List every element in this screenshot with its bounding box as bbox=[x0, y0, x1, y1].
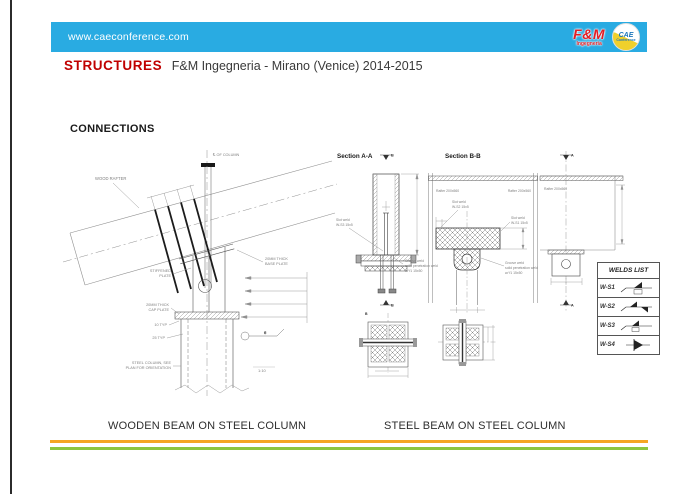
wood-rafter-label: WOOD RAFTER bbox=[95, 176, 126, 181]
weld-size-label: 6 bbox=[264, 330, 267, 335]
cap-plate-label-2: CAP PLATE bbox=[148, 308, 169, 312]
weld-row-ws4: W-S4 bbox=[598, 336, 659, 354]
welds-list-title: WELDS LIST bbox=[598, 263, 659, 279]
annotation-labels: WOOD RAFTER ℄ OF COLUMN 20MM THICK BASE … bbox=[95, 153, 288, 373]
rod-dimension-ticks bbox=[147, 185, 194, 210]
fm-logo-text: F&M bbox=[573, 27, 605, 41]
elevation-marker-top-label: A bbox=[571, 154, 574, 158]
window-left-border bbox=[10, 0, 12, 494]
steel-column-label-1: STEEL COLUMN, SEE bbox=[132, 361, 172, 365]
caption-steel-beam: STEEL BEAM ON STEEL COLUMN bbox=[384, 420, 566, 432]
slot-weld-b-right-label-2: W-S1 15x5 bbox=[511, 221, 528, 225]
slot-weld-b-right-label-1: Slot weld bbox=[511, 216, 525, 220]
fillet-weld-symbol bbox=[620, 280, 654, 296]
section-marker-bottom-label: B bbox=[391, 304, 394, 308]
slide: www.caeconference.com F&M Ingegneria CAE… bbox=[0, 0, 700, 494]
caption-wooden-beam: WOODEN BEAM ON STEEL COLUMN bbox=[108, 420, 306, 432]
section-a: Section A-A B Slot weld W-S3 15x5 bbox=[336, 153, 438, 308]
groove-weld-a-label-2: solid penetration weld bbox=[405, 264, 438, 268]
weld-symbol: 6 bbox=[241, 329, 284, 340]
elevation-rafter-label: Rafter 200x560 bbox=[544, 187, 567, 191]
elevation-base-dimension bbox=[551, 278, 582, 285]
wood-wall-right bbox=[395, 174, 399, 255]
dimension-stack bbox=[241, 272, 307, 323]
wood-wall-left bbox=[373, 174, 377, 255]
groove-weld-a-label-3: w/ f1 15x50 bbox=[405, 269, 422, 273]
fm-ingegneria-logo: F&M Ingegneria bbox=[573, 27, 605, 47]
wooden-beam-drawing: 6 WOOD RAFTER ℄ OF COLUMN 20MM THICK BAS… bbox=[55, 138, 340, 418]
column-above bbox=[201, 150, 215, 396]
plan-b-dimensions bbox=[483, 325, 495, 360]
elevation-marker-bottom: A bbox=[560, 300, 574, 308]
welds-list-table: WELDS LIST W-S1 W-S2 W-S3 bbox=[597, 262, 660, 355]
stiffened-plate-label-1: STIFFENED bbox=[150, 269, 171, 273]
slot-weld-a-label-1: Slot weld bbox=[336, 218, 350, 222]
logo-zone: F&M Ingegneria CAE Conference bbox=[573, 23, 640, 51]
section-a-dimensions bbox=[401, 174, 419, 255]
slot-weld-a-label-2: W-S3 15x5 bbox=[336, 223, 353, 227]
groove-weld-symbol bbox=[620, 337, 654, 353]
rafter-left-label: Rafter 200x560 bbox=[436, 189, 459, 193]
section-b: Section B-B Rafter 200x560 Rafter 200x56… bbox=[429, 153, 538, 313]
elevation-marker-bottom-label: A bbox=[571, 304, 574, 308]
groove-weld-b-label-3: w/ f1 15x50 bbox=[505, 271, 522, 275]
footer-green-line bbox=[50, 447, 648, 450]
weld-id-label: W-S1 bbox=[600, 285, 620, 291]
elevation-marker-top: A bbox=[560, 154, 574, 161]
conference-url-link[interactable]: www.caeconference.com bbox=[68, 31, 189, 43]
header-bar: www.caeconference.com F&M Ingegneria CAE… bbox=[51, 22, 647, 52]
weld-row-ws3: W-S3 bbox=[598, 317, 659, 336]
section-b-title: Section B-B bbox=[445, 153, 481, 160]
stiffened-plate-label-2: PLATE bbox=[159, 274, 171, 278]
plan-a-marker: B bbox=[365, 312, 368, 316]
glued-rods bbox=[155, 199, 217, 293]
double-fillet-weld-symbol bbox=[620, 299, 654, 315]
typ10-label: 10 TYP bbox=[154, 323, 167, 327]
slot-weld-b-top-label-1: Slot weld bbox=[452, 200, 466, 204]
groove-weld-b-label-2: solid penetration weld bbox=[505, 266, 538, 270]
weld-row-ws2: W-S2 bbox=[598, 298, 659, 317]
section-a-title: Section A-A bbox=[337, 153, 373, 160]
groove-weld-b-label-1: Groove weld bbox=[505, 261, 524, 265]
cap-plate bbox=[175, 312, 239, 319]
rafter-top-flange bbox=[429, 176, 538, 181]
base-plate-label-2: BASE PLATE bbox=[265, 262, 288, 266]
plan-view-a: B bbox=[359, 312, 417, 378]
connections-heading: CONNECTIONS bbox=[70, 123, 155, 135]
connection-plate bbox=[436, 228, 500, 249]
section-marker-bottom: B bbox=[380, 300, 394, 308]
footer-orange-line bbox=[50, 440, 648, 443]
title-subtitle: F&M Ingegneria - Mirano (Venice) 2014-20… bbox=[172, 59, 423, 73]
weld-id-label: W-S2 bbox=[600, 304, 620, 310]
elevation-dimension bbox=[616, 185, 625, 244]
title-structures: STRUCTURES bbox=[64, 58, 162, 73]
single-fillet-weld-symbol bbox=[620, 318, 654, 334]
section-marker-top: B bbox=[380, 154, 394, 161]
cae-logo-subtext: Conference bbox=[616, 39, 635, 43]
section-marker-top-label: B bbox=[391, 154, 394, 158]
steel-column-label-2: PLAN FOR ORIENTATION bbox=[126, 366, 172, 370]
groove-weld-a-label-1: Groove weld bbox=[405, 259, 424, 263]
slot-weld-b-top-label-2: W-S2 15x5 bbox=[452, 205, 469, 209]
column-centerline-label: ℄ OF COLUMN bbox=[212, 153, 240, 157]
base-plate-label-1: 20MM THICK bbox=[265, 257, 288, 261]
scale-ref-label: 1:10 bbox=[258, 368, 267, 373]
weld-row-ws1: W-S1 bbox=[598, 279, 659, 298]
elevation-base bbox=[548, 250, 584, 276]
cae-conference-logo: CAE Conference bbox=[612, 23, 640, 51]
column-top-cap bbox=[201, 163, 215, 167]
plan-view-b bbox=[438, 319, 497, 366]
weld-id-label: W-S3 bbox=[600, 323, 620, 329]
column-break-line bbox=[175, 385, 249, 393]
weld-id-label: W-S4 bbox=[600, 342, 620, 348]
typ25-label: 25 TYP bbox=[152, 336, 165, 340]
slide-title: STRUCTURES F&M Ingegneria - Mirano (Veni… bbox=[64, 57, 423, 75]
rafter-right-label: Rafter 200x560 bbox=[508, 189, 531, 193]
fm-logo-subtext: Ingegneria bbox=[573, 42, 605, 47]
cap-plate-label-1: 20MM THICK bbox=[146, 303, 169, 307]
steel-column bbox=[175, 319, 249, 393]
